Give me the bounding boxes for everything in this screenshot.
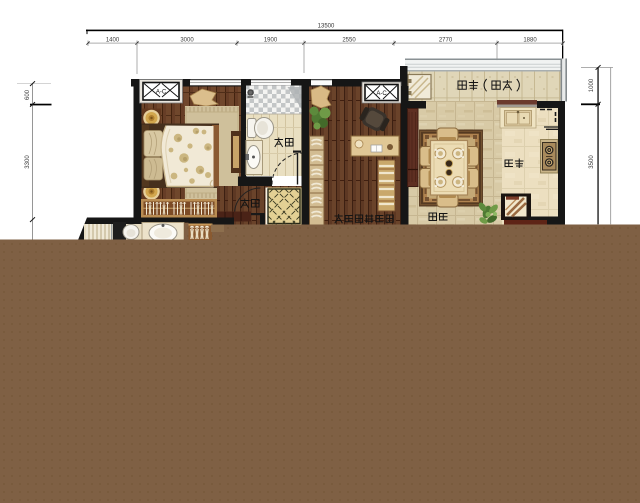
svg-text:2770: 2770 [439,37,453,43]
svg-text:1880: 1880 [523,37,537,43]
svg-text:3000: 3000 [180,37,194,43]
svg-text:600: 600 [25,89,31,100]
svg-text:1400: 1400 [106,37,120,43]
svg-text:3300: 3300 [25,155,31,169]
svg-text:2550: 2550 [342,37,356,43]
svg-text:1000: 1000 [589,78,595,92]
svg-text:3500: 3500 [589,155,595,169]
svg-text:A-C: A-C [376,91,387,97]
svg-text:13500: 13500 [318,24,335,30]
svg-text:A-C: A-C [156,90,167,96]
svg-text:1900: 1900 [264,37,278,43]
